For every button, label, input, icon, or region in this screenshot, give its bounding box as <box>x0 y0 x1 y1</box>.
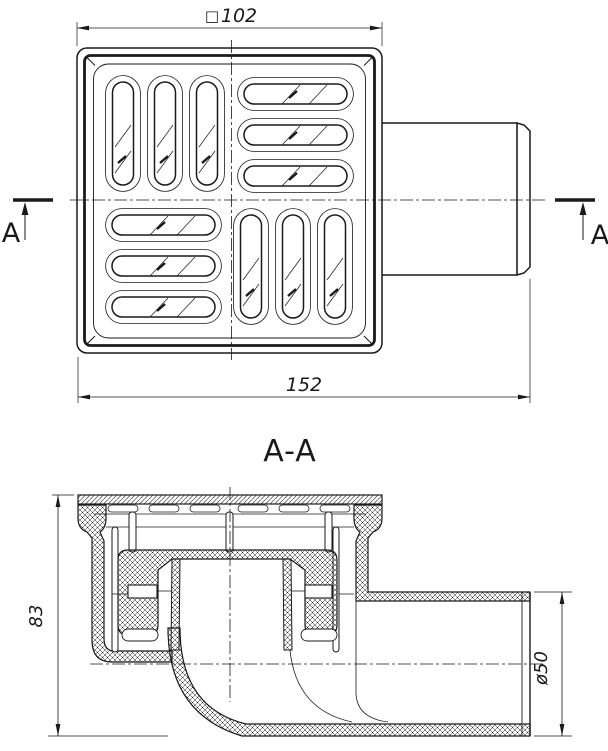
clip-right <box>305 585 332 598</box>
cut-arrow-up-icon <box>580 202 587 215</box>
dim-outlet-diameter-value: ø50 <box>531 651 552 686</box>
bell-lip-right <box>301 629 337 641</box>
plan-view: □ 102 152 A A <box>2 5 608 403</box>
dim-square-symbol: □ <box>205 7 219 25</box>
section-cut-label-right: A <box>591 220 608 251</box>
floor-drain-technical-drawing: □ 102 152 A A A-A <box>0 0 608 751</box>
clip-left <box>128 585 157 598</box>
dim-square-size: □ 102 <box>77 5 382 46</box>
section-title: A-A <box>263 434 317 469</box>
section-cut-label-left: A <box>2 218 21 249</box>
section-view: 83 ø50 <box>26 487 572 736</box>
cut-mark-left: A <box>2 200 53 249</box>
dim-square-value: 102 <box>221 5 257 27</box>
grate-section-slots <box>108 505 350 512</box>
dim-height-value: 83 <box>26 605 47 628</box>
bell-lip-left <box>122 629 158 641</box>
drain-body-right-wall <box>354 505 530 601</box>
dim-overall-width-value: 152 <box>286 374 322 396</box>
cut-arrow-up-icon <box>22 202 29 215</box>
bell-skirt-right <box>283 559 292 650</box>
dim-outlet-diameter: ø50 <box>531 592 572 736</box>
bell-skirt-left <box>171 559 180 650</box>
outlet-funnel <box>168 628 530 736</box>
insert-bell <box>112 550 354 650</box>
drawing-canvas: □ 102 152 A A A-A <box>0 0 608 751</box>
grate-pins <box>129 512 332 552</box>
cut-mark-right: A <box>555 200 608 251</box>
outlet-pipe-plan <box>382 123 530 275</box>
